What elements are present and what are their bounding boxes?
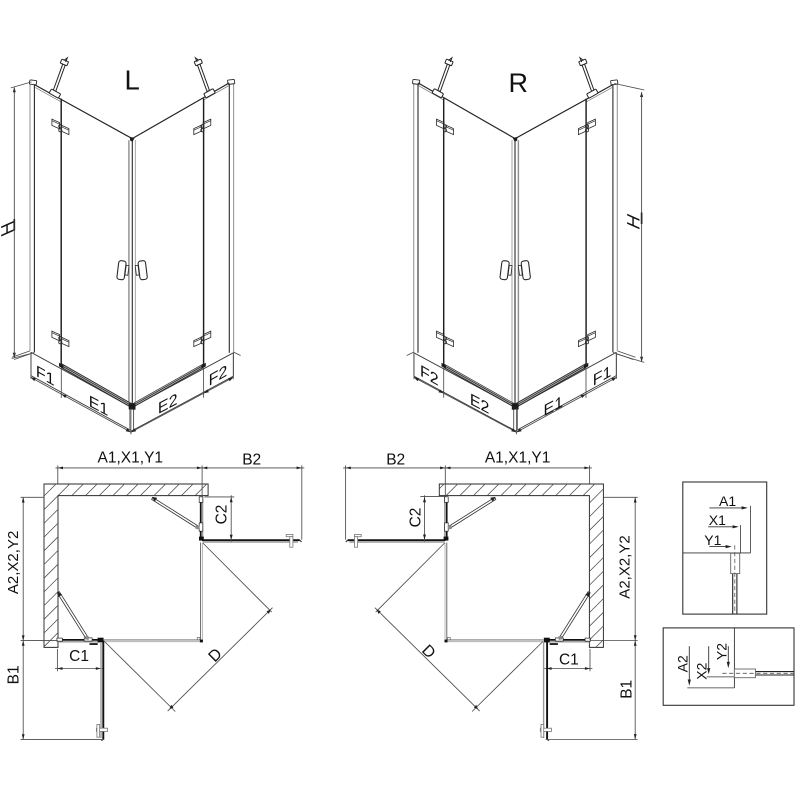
svg-text:B2: B2	[386, 451, 405, 468]
svg-text:L: L	[125, 64, 140, 95]
svg-text:B1: B1	[6, 665, 23, 684]
svg-text:C2: C2	[214, 505, 231, 525]
svg-text:X1: X1	[709, 512, 726, 528]
svg-text:C2: C2	[407, 508, 424, 528]
svg-text:C1: C1	[559, 651, 579, 668]
svg-text:A1,X1,Y1: A1,X1,Y1	[98, 449, 164, 466]
svg-text:A1,X1,Y1: A1,X1,Y1	[485, 449, 551, 466]
svg-text:A1: A1	[719, 493, 736, 509]
svg-text:A2: A2	[674, 655, 690, 672]
svg-text:Y1: Y1	[704, 532, 721, 548]
svg-text:B1: B1	[619, 680, 636, 699]
svg-text:A2,X2,Y2: A2,X2,Y2	[5, 531, 22, 594]
svg-text:A2,X2,Y2: A2,X2,Y2	[617, 535, 634, 598]
svg-text:Y2: Y2	[714, 643, 730, 660]
svg-text:B2: B2	[242, 451, 261, 468]
svg-text:R: R	[509, 68, 529, 98]
svg-text:X2: X2	[694, 662, 710, 679]
svg-text:C1: C1	[69, 648, 89, 665]
